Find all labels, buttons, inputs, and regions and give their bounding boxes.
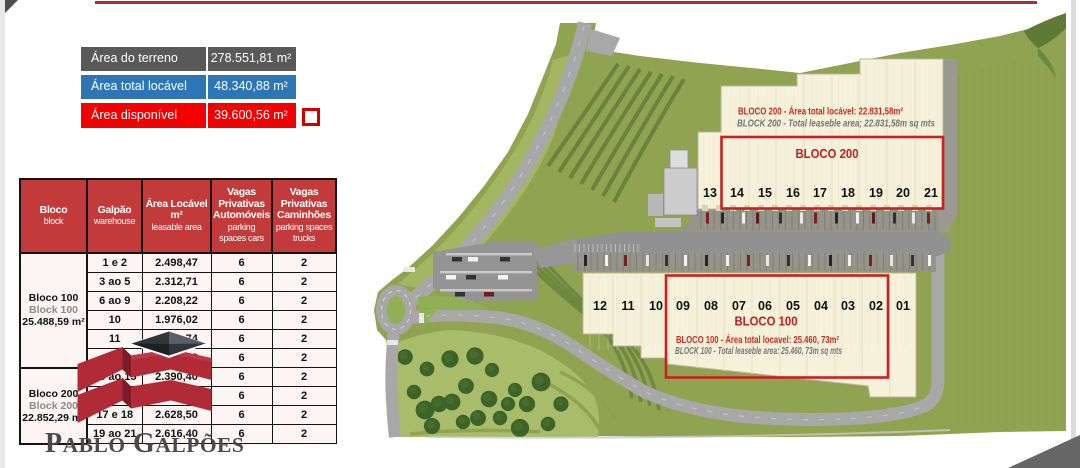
svg-text:BLOCO 100 - Área total locavel: BLOCO 100 - Área total locavel: 25.460, … bbox=[676, 333, 840, 346]
svg-text:05: 05 bbox=[786, 299, 800, 313]
svg-text:17: 17 bbox=[813, 186, 827, 200]
svg-text:09: 09 bbox=[676, 299, 690, 313]
svg-text:BLOCO 100: BLOCO 100 bbox=[735, 314, 798, 329]
svg-text:BLOCK 200 - Total leaseble are: BLOCK 200 - Total leaseble area; 22.831,… bbox=[737, 119, 935, 130]
svg-text:19: 19 bbox=[869, 186, 883, 200]
svg-text:11: 11 bbox=[621, 299, 634, 313]
svg-text:06: 06 bbox=[758, 299, 772, 313]
svg-text:07: 07 bbox=[732, 299, 746, 313]
svg-text:BLOCK 100 - Total leaseble are: BLOCK 100 - Total leaseble area: 25.460,… bbox=[675, 346, 842, 357]
svg-text:02: 02 bbox=[869, 299, 883, 313]
svg-text:04: 04 bbox=[814, 299, 828, 313]
svg-text:01: 01 bbox=[896, 299, 910, 313]
svg-text:10: 10 bbox=[649, 299, 663, 313]
svg-text:08: 08 bbox=[704, 299, 718, 313]
svg-text:16: 16 bbox=[786, 186, 800, 200]
svg-text:12: 12 bbox=[593, 299, 607, 313]
svg-text:20: 20 bbox=[896, 186, 910, 200]
svg-text:21: 21 bbox=[924, 186, 938, 200]
svg-text:15: 15 bbox=[758, 186, 772, 200]
svg-text:18: 18 bbox=[841, 186, 855, 200]
svg-text:03: 03 bbox=[841, 299, 855, 313]
svg-text:BLOCO 200: BLOCO 200 bbox=[796, 146, 859, 161]
svg-text:13: 13 bbox=[703, 186, 717, 200]
svg-text:BLOCO 200 - Área total locável: BLOCO 200 - Área total locável: 22.831,5… bbox=[738, 105, 904, 118]
svg-text:14: 14 bbox=[730, 186, 744, 200]
